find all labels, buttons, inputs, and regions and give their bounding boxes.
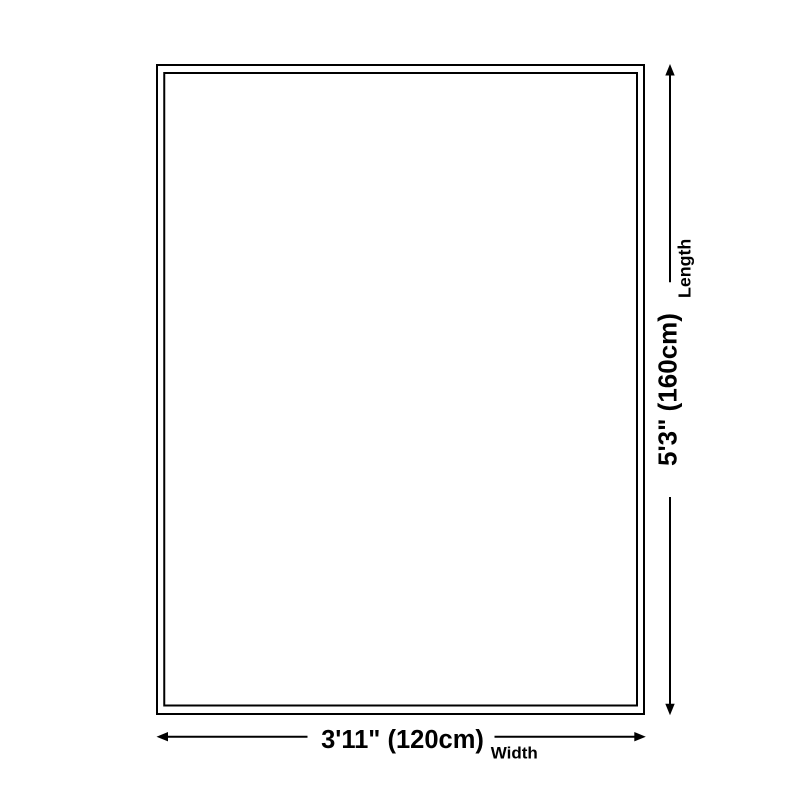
svg-text:5'3" (160cm): 5'3" (160cm)	[653, 313, 683, 466]
svg-text:3'11" (120cm): 3'11" (120cm)	[321, 726, 484, 754]
svg-text:Width: Width	[491, 744, 538, 763]
svg-text:Length: Length	[674, 239, 694, 298]
